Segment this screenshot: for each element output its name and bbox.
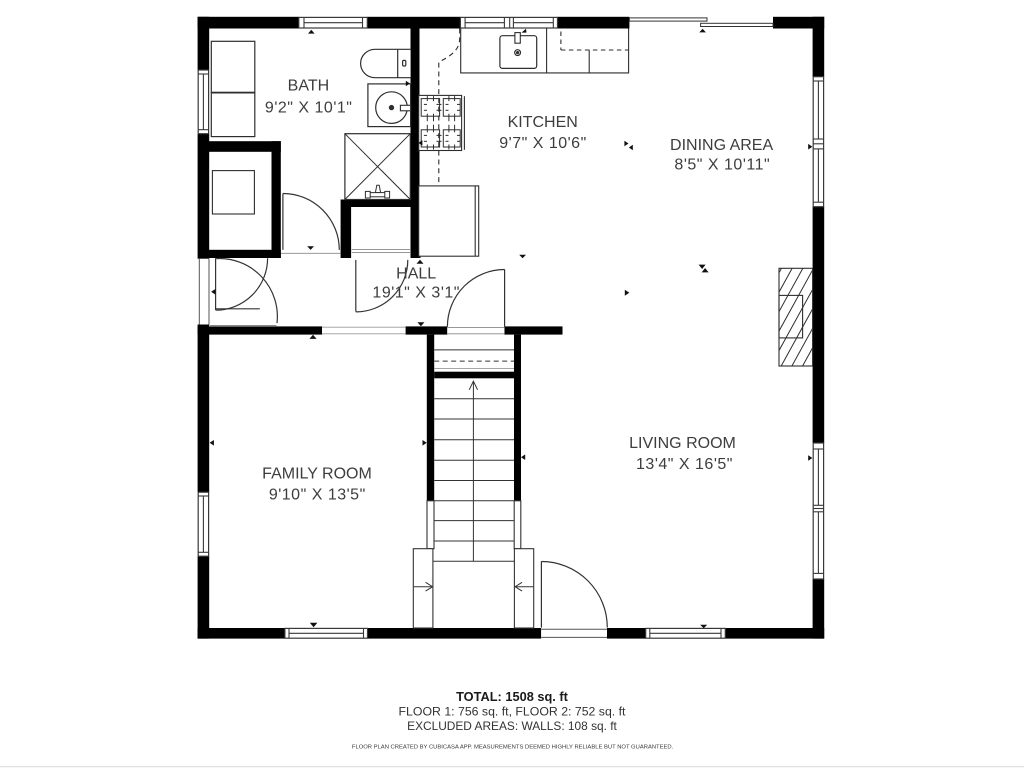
svg-text:9'10" X 13'5": 9'10" X 13'5" <box>269 487 366 504</box>
svg-text:FLOOR PLAN CREATED BY CUBICASA: FLOOR PLAN CREATED BY CUBICASA APP. MEAS… <box>352 744 674 750</box>
svg-text:19'1" X 3'1": 19'1" X 3'1" <box>372 284 460 301</box>
svg-text:13'4" X 16'5": 13'4" X 16'5" <box>636 456 733 473</box>
svg-text:KITCHEN: KITCHEN <box>508 114 578 131</box>
svg-text:FAMILY ROOM: FAMILY ROOM <box>262 465 372 482</box>
svg-text:BATH: BATH <box>288 77 329 94</box>
svg-text:9'7" X 10'6": 9'7" X 10'6" <box>499 135 587 152</box>
svg-text:EXCLUDED AREAS: WALLS: 108 sq.: EXCLUDED AREAS: WALLS: 108 sq. ft <box>407 719 617 733</box>
svg-text:DINING AREA: DINING AREA <box>670 137 773 154</box>
svg-text:HALL: HALL <box>396 266 436 283</box>
svg-text:8'5" X 10'11": 8'5" X 10'11" <box>674 157 770 174</box>
svg-text:9'2" X 10'1": 9'2" X 10'1" <box>265 100 353 117</box>
svg-text:TOTAL: 1508 sq. ft: TOTAL: 1508 sq. ft <box>456 689 569 704</box>
svg-text:FLOOR 1: 756 sq. ft, FLOOR 2:: FLOOR 1: 756 sq. ft, FLOOR 2: 752 sq. ft <box>399 704 626 718</box>
svg-text:LIVING ROOM: LIVING ROOM <box>629 435 736 452</box>
